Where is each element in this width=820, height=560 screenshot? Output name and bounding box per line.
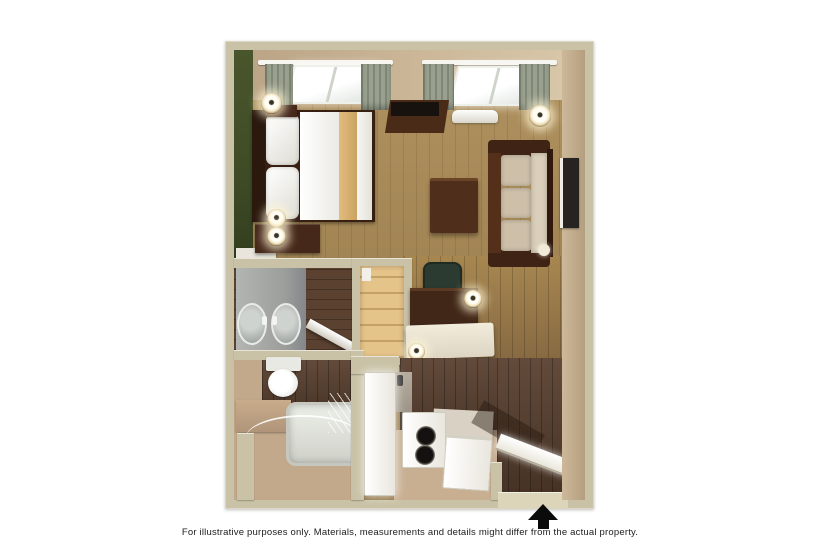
wall-mirror bbox=[560, 158, 579, 228]
bed-headboard bbox=[252, 110, 265, 222]
faucet-2 bbox=[272, 316, 277, 325]
kitchen-faucet bbox=[397, 375, 403, 386]
stove-burner-1 bbox=[416, 426, 436, 446]
sofa-back-cushions bbox=[531, 153, 547, 253]
floor-plan bbox=[225, 41, 594, 509]
sofa-cushion bbox=[501, 188, 531, 219]
coffee-table bbox=[430, 178, 478, 233]
window-1-curtain-right bbox=[361, 64, 391, 110]
bedside-lamp-bottom-2 bbox=[267, 227, 286, 246]
bed-runner bbox=[339, 112, 357, 220]
green-accent-wall bbox=[234, 50, 253, 278]
sofa-cushion bbox=[501, 220, 531, 251]
bedside-lamp-bottom-1 bbox=[267, 209, 286, 228]
bed-pillow-1 bbox=[266, 114, 299, 165]
sofa-frame-back bbox=[547, 149, 553, 257]
sofa-cushion bbox=[501, 155, 531, 186]
sofa-frame-front bbox=[488, 153, 501, 253]
dresser bbox=[255, 224, 320, 253]
window-2-curtain-right bbox=[519, 64, 550, 110]
faucet-1 bbox=[262, 316, 267, 325]
desk-lamp bbox=[464, 290, 482, 308]
toilet-bowl bbox=[268, 369, 298, 397]
floor-lamp bbox=[538, 244, 550, 256]
tv bbox=[391, 102, 439, 116]
disclaimer-caption: For illustrative purposes only. Material… bbox=[0, 527, 820, 538]
stove-burner-2 bbox=[415, 445, 435, 465]
dishwasher bbox=[442, 434, 493, 491]
bed-duvet-foot bbox=[357, 112, 372, 220]
wall-vanity-north bbox=[234, 258, 356, 268]
wall-lamp bbox=[529, 105, 551, 127]
bed-duvet bbox=[300, 112, 339, 220]
closet-shelf-box bbox=[362, 268, 371, 281]
bedside-lamp-top bbox=[261, 93, 282, 114]
entrance-arrow-icon bbox=[528, 504, 558, 529]
refrigerator bbox=[364, 372, 396, 496]
entrance-arrow-head bbox=[528, 504, 558, 520]
sofa-seat-cushions bbox=[501, 155, 531, 251]
bathroom-wall-stub bbox=[237, 433, 254, 500]
page: For illustrative purposes only. Material… bbox=[0, 0, 820, 560]
right-interior-wall bbox=[562, 50, 585, 500]
ac-unit bbox=[452, 110, 498, 123]
